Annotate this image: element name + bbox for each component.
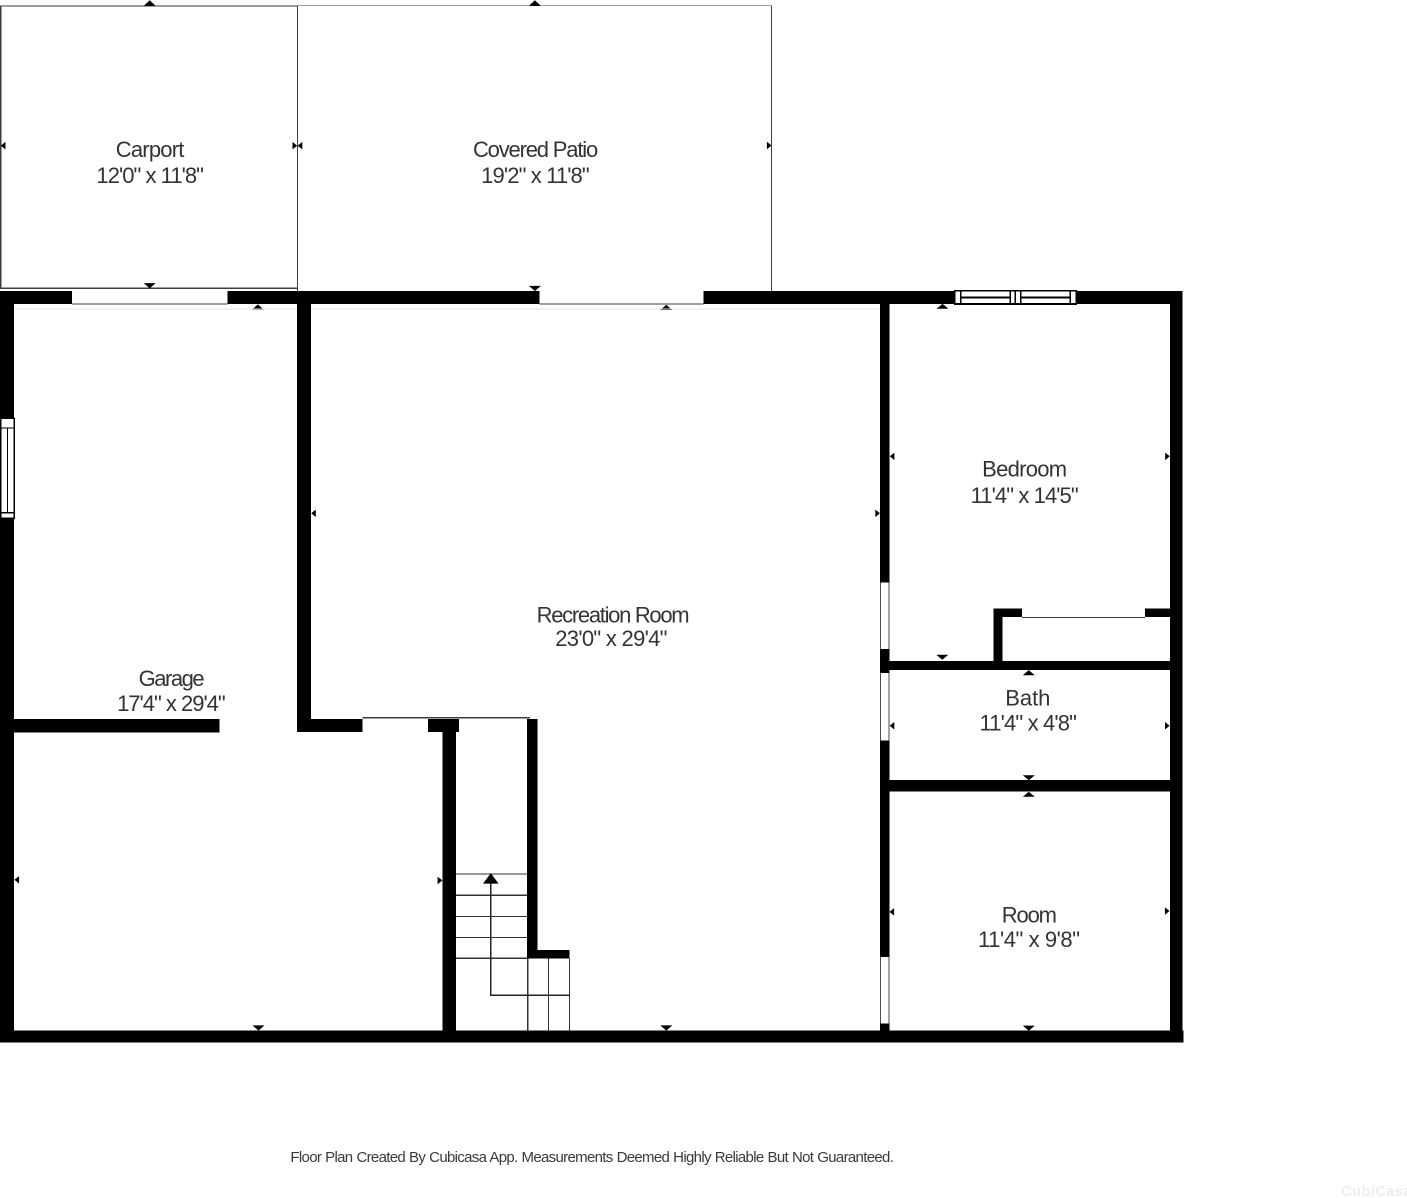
svg-text:23'0" x 29'4": 23'0" x 29'4" [555, 626, 666, 651]
svg-text:11'4" x 4'8": 11'4" x 4'8" [980, 711, 1077, 736]
svg-text:Floor Plan Created By Cubicasa: Floor Plan Created By Cubicasa App. Meas… [290, 1149, 893, 1166]
svg-text:17'4" x 29'4": 17'4" x 29'4" [117, 691, 225, 716]
svg-text:Recreation Room: Recreation Room [537, 603, 689, 628]
svg-text:11'4" x 14'5": 11'4" x 14'5" [971, 483, 1078, 508]
svg-text:11'4" x 9'8": 11'4" x 9'8" [978, 927, 1080, 952]
svg-text:Bedroom: Bedroom [982, 457, 1066, 482]
svg-text:19'2" x 11'8": 19'2" x 11'8" [481, 163, 589, 188]
svg-text:12'0" x 11'8": 12'0" x 11'8" [96, 163, 203, 188]
svg-text:Bath: Bath [1005, 686, 1050, 711]
svg-text:Room: Room [1002, 903, 1056, 928]
svg-text:Carport: Carport [116, 137, 185, 162]
svg-text:Covered Patio: Covered Patio [473, 137, 598, 162]
svg-text:Garage: Garage [139, 666, 205, 691]
svg-text:CubiCasa: CubiCasa [1341, 1184, 1407, 1198]
